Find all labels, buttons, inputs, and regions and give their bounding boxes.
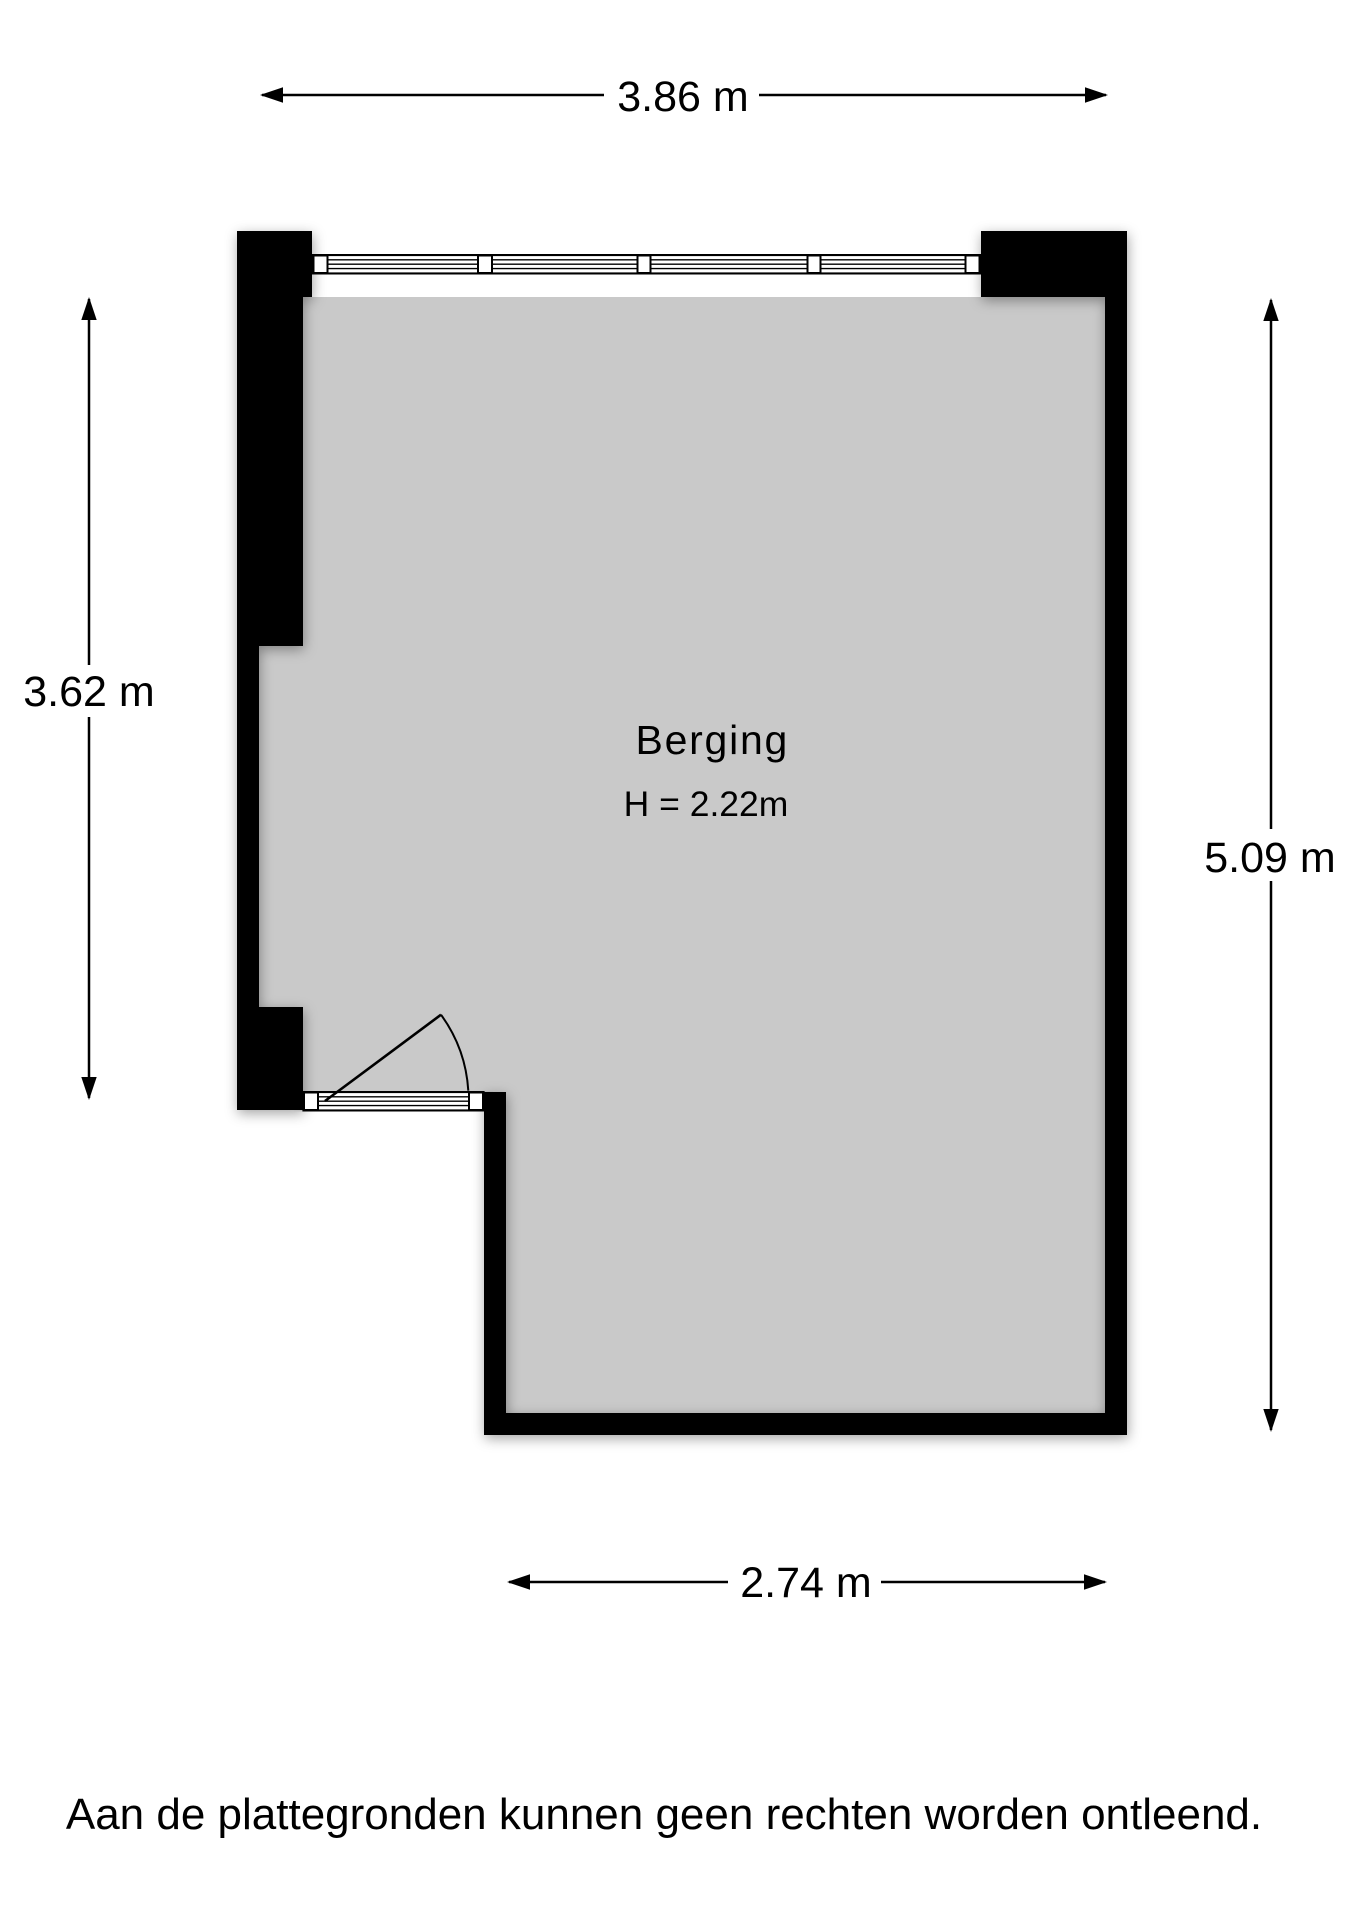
svg-text:2.74 m: 2.74 m [740, 1559, 871, 1607]
svg-text:H = 2.22m: H = 2.22m [624, 784, 789, 824]
svg-text:3.62 m: 3.62 m [23, 668, 154, 716]
svg-text:Berging: Berging [636, 717, 790, 763]
svg-text:Aan de plattegronden kunnen ge: Aan de plattegronden kunnen geen rechten… [66, 1790, 1262, 1839]
svg-text:3.86 m: 3.86 m [617, 73, 748, 121]
svg-text:5.09 m: 5.09 m [1204, 834, 1335, 882]
